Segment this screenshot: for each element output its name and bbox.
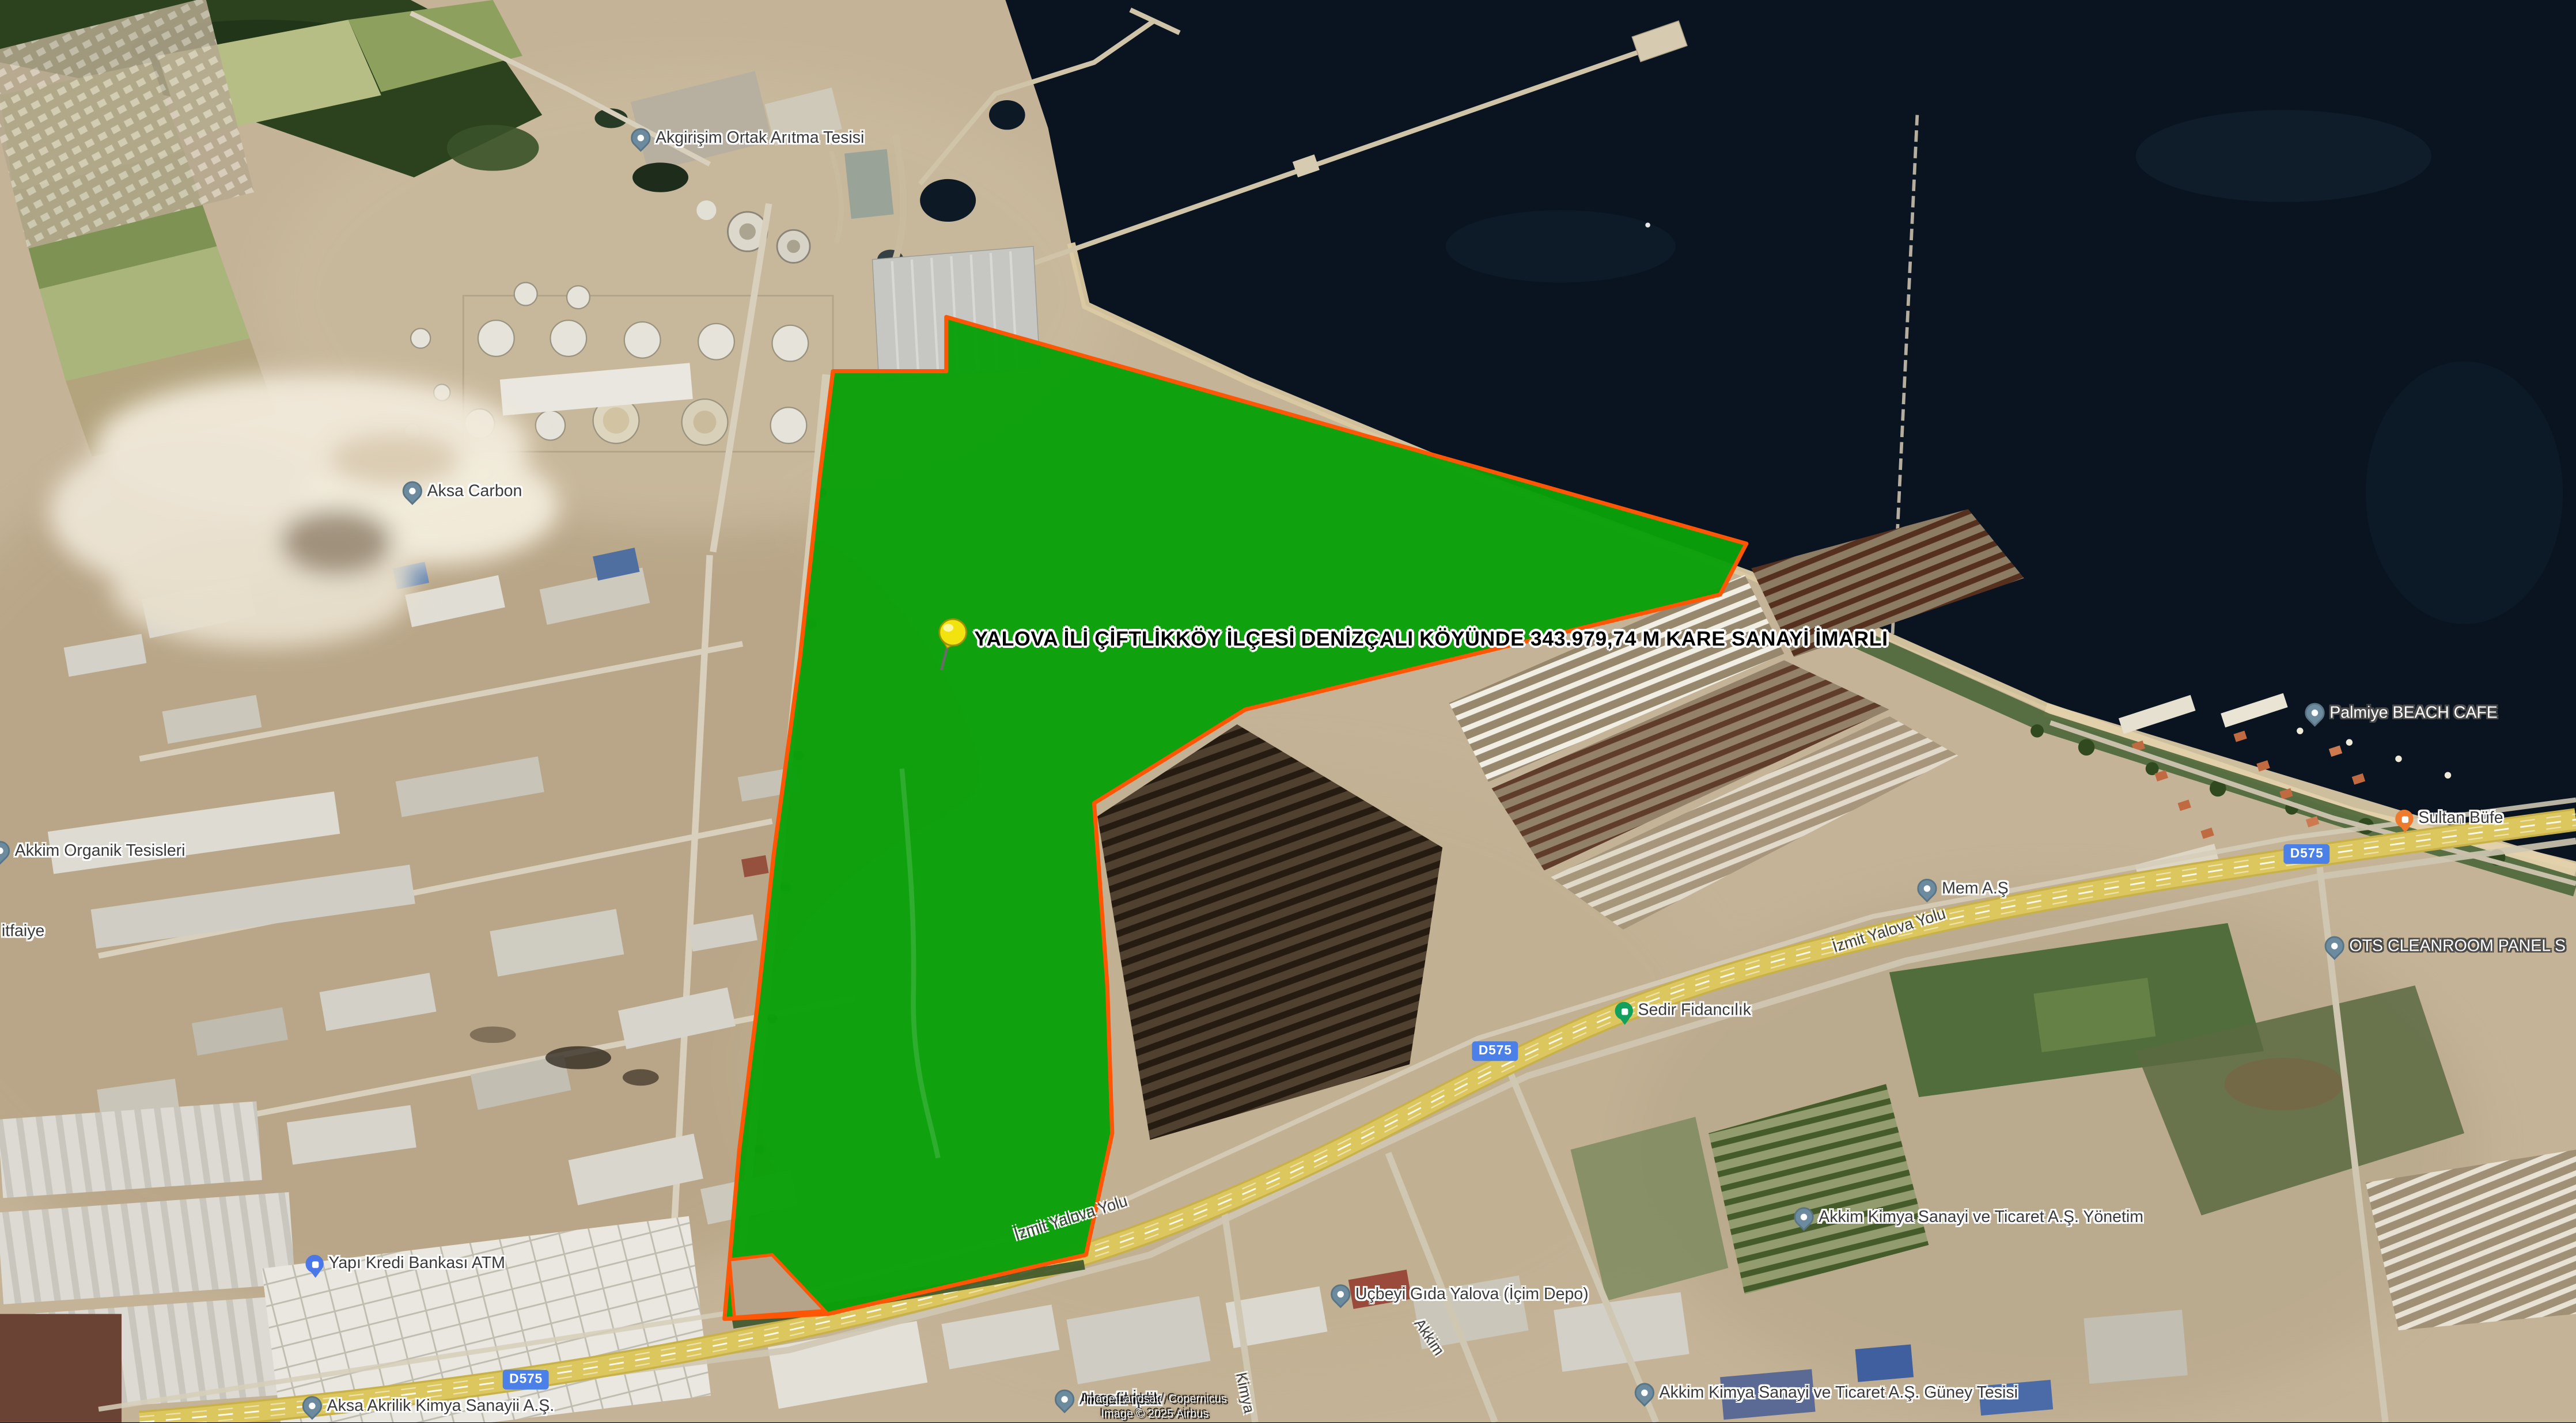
bank-pin-icon[interactable]	[305, 1255, 323, 1273]
poi-aksa-akrilik[interactable]: Aksa Akrilik Kimya Sanayii A.Ş.	[302, 1396, 554, 1416]
poi-aksa-carbon[interactable]: Aksa Carbon	[403, 481, 522, 501]
poi-label[interactable]: Uçbeyi Gıda Yalova (İçim Depo)	[1355, 1285, 1589, 1303]
default-pin-icon[interactable]	[1051, 1386, 1078, 1413]
default-pin-icon[interactable]	[298, 1392, 326, 1420]
poi-yapi-kredi-atm[interactable]: Yapı Kredi Bankası ATM	[305, 1255, 505, 1273]
poi-label[interactable]: Yapı Kredi Bankası ATM	[328, 1255, 505, 1273]
poi-label[interactable]: OTS CLEANROOM PANEL S	[2349, 937, 2566, 955]
poi-sultan-bufe[interactable]: Sultan Büfe	[2395, 810, 2503, 828]
poi-label[interactable]: Aksa Carbon	[427, 482, 522, 500]
poi-label[interactable]: itfaiye	[2, 923, 45, 941]
imagery-attribution: Image Landsat / Copernicus Image © 2025 …	[1083, 1394, 1227, 1422]
default-pin-icon[interactable]	[399, 477, 426, 505]
route-badge-d575: D575	[503, 1370, 550, 1389]
poi-label[interactable]: Palmiye BEACH CAFE	[2329, 704, 2498, 722]
poi-label[interactable]: Akgirişim Ortak Arıtma Tesisi	[656, 129, 864, 147]
poi-akkim-yonetim[interactable]: Akkim Kimya Sanayi ve Ticaret A.Ş. Yönet…	[1794, 1207, 2143, 1227]
poi-label[interactable]: Akkim Kimya Sanayi ve Ticaret A.Ş. Yönet…	[1819, 1208, 2143, 1226]
satellite-map-art	[0, 0, 2576, 1422]
poi-sedir-fidancilik[interactable]: Sedir Fidancılık	[1615, 1002, 1751, 1020]
poi-itfaiye[interactable]: itfaiye	[2, 923, 45, 941]
default-pin-icon[interactable]	[1913, 875, 1941, 902]
default-pin-icon[interactable]	[2301, 699, 2328, 727]
parcel-placemark: YALOVA İLİ ÇİFTLİKKÖY İLÇESİ DENİZÇALI K…	[930, 617, 1888, 675]
default-pin-icon[interactable]	[627, 124, 654, 151]
poi-akkim-guney[interactable]: Akkim Kimya Sanayi ve Ticaret A.Ş. Güney…	[1635, 1383, 2018, 1402]
poi-label[interactable]: Sultan Büfe	[2418, 810, 2503, 828]
poi-ots-cleanroom[interactable]: OTS CLEANROOM PANEL S	[2325, 936, 2566, 956]
map-canvas[interactable]: Akgirişim Ortak Arıtma Tesisi Aksa Carbo…	[0, 0, 2576, 1422]
poi-label[interactable]: Mem A.Ş	[1942, 879, 2009, 897]
poi-akgirisim[interactable]: Akgirişim Ortak Arıtma Tesisi	[631, 128, 864, 147]
poi-mem[interactable]: Mem A.Ş	[1917, 879, 2009, 898]
parcel-label: YALOVA İLİ ÇİFTLİKKÖY İLÇESİ DENİZÇALI K…	[974, 627, 1888, 650]
poi-label[interactable]: Akkim Organik Tesisleri	[15, 842, 185, 860]
default-pin-icon[interactable]	[0, 837, 14, 864]
poi-label[interactable]: Akkim Kimya Sanayi ve Ticaret A.Ş. Güney…	[1660, 1384, 2018, 1402]
default-pin-icon[interactable]	[1631, 1379, 1658, 1406]
pushpin-icon[interactable]	[930, 617, 974, 675]
default-pin-icon[interactable]	[1790, 1203, 1817, 1231]
attribution-line: Image © 2025 Airbus	[1083, 1409, 1227, 1422]
route-badge-d575: D575	[2283, 844, 2330, 863]
poi-label[interactable]: Aksa Akrilik Kimya Sanayii A.Ş.	[327, 1397, 555, 1415]
poi-akkim-organik[interactable]: Akkim Organik Tesisleri	[0, 841, 185, 860]
default-pin-icon[interactable]	[1327, 1280, 1354, 1308]
default-pin-icon[interactable]	[2321, 932, 2348, 960]
poi-palmiye[interactable]: Palmiye BEACH CAFE	[2305, 703, 2497, 723]
route-badge-d575: D575	[1472, 1041, 1518, 1060]
food-pin-icon[interactable]	[2395, 810, 2413, 828]
poi-label[interactable]: Sedir Fidancılık	[1638, 1002, 1751, 1020]
tree-pin-icon[interactable]	[1615, 1002, 1633, 1020]
attribution-line: Image Landsat / Copernicus	[1083, 1394, 1227, 1409]
poi-ucbeyi[interactable]: Uçbeyi Gıda Yalova (İçim Depo)	[1331, 1284, 1589, 1304]
